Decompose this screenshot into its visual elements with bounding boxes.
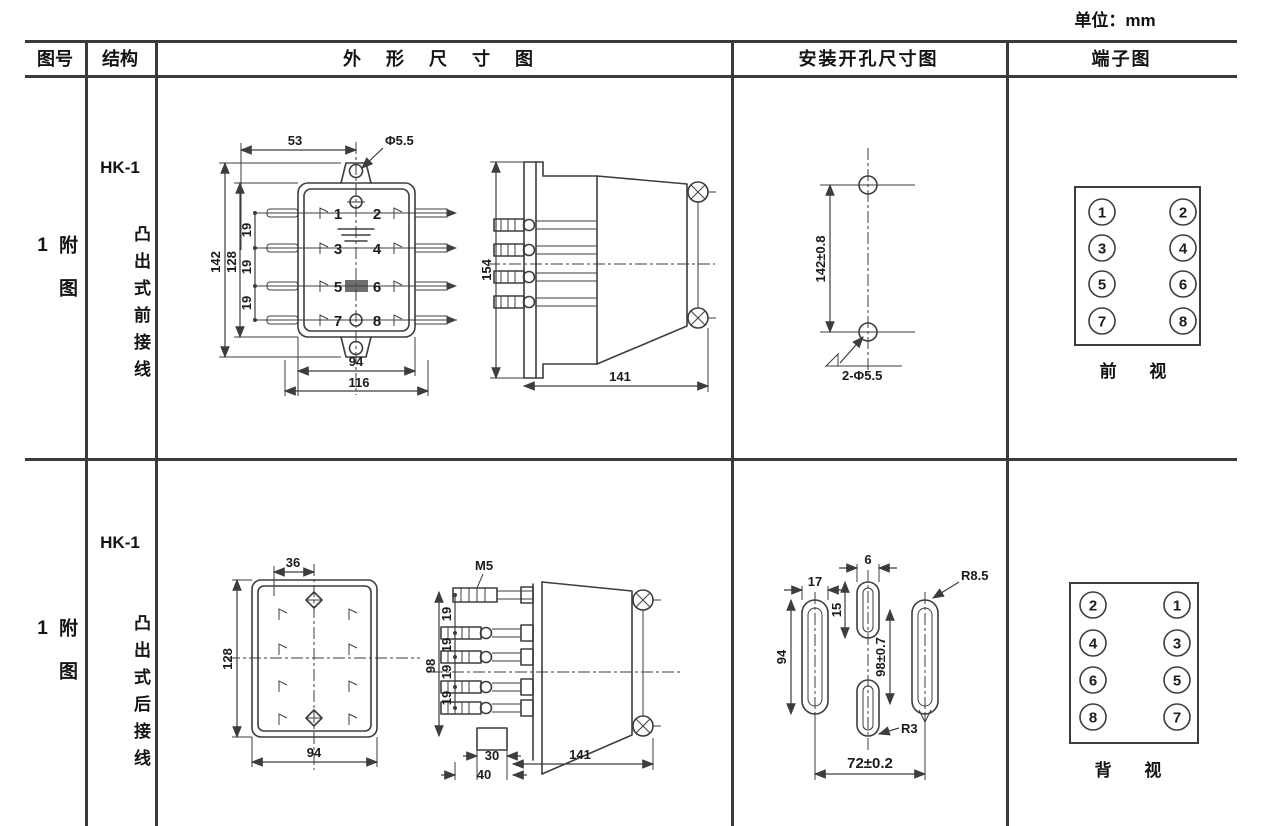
dim-label: 19	[239, 260, 254, 274]
dim-label: 19	[439, 607, 454, 621]
terminal-number: 3	[334, 241, 342, 258]
dim-label: 15	[829, 603, 844, 617]
terminal-number: 5	[334, 279, 342, 296]
terminal-number: 6	[373, 279, 381, 296]
terminal-number: 2	[373, 206, 381, 223]
terminal-number: 8	[1179, 314, 1187, 331]
terminal-number: 7	[1173, 710, 1181, 727]
dim-label: 19	[239, 296, 254, 310]
terminal-number: 2	[1179, 205, 1187, 222]
dim-label: 19	[439, 691, 454, 705]
terminal-number: 3	[1173, 636, 1181, 653]
header-figure-no: 图号	[25, 42, 85, 74]
terminal-number: 1	[1173, 598, 1181, 615]
dim-label: 72±0.2	[847, 755, 893, 772]
datasheet-page: 单位：mm 图号 结构 外 形 尺 寸 图 安装开孔尺寸图 端子图 附图1 HK…	[0, 0, 1269, 826]
dim-label: Φ5.5	[385, 133, 414, 148]
dim-label: 98±0.7	[873, 637, 888, 677]
row1-outline-side-drawing: 154 141	[480, 140, 720, 415]
dim-label: 94	[775, 649, 789, 664]
terminal-number: 7	[334, 313, 342, 330]
terminal-number: 1	[1098, 205, 1106, 222]
dim-label: 94	[349, 354, 364, 369]
dim-label: 141	[569, 747, 591, 762]
header-terminal: 端子图	[1006, 42, 1237, 74]
unit-label: 单位：mm	[1035, 6, 1195, 31]
dim-label: 6	[864, 552, 871, 567]
table-line-col2	[155, 40, 158, 826]
terminal-number: 5	[1173, 673, 1181, 690]
dim-label: R8.5	[961, 568, 988, 583]
dim-label: 30	[485, 748, 499, 763]
terminal-number: 7	[1098, 314, 1106, 331]
terminal-number: 4	[1089, 636, 1098, 653]
table-line-col3	[731, 40, 734, 826]
terminal-number: 5	[1098, 277, 1106, 294]
dim-label: 128	[222, 648, 235, 670]
dim-label: 2-Φ5.5	[842, 368, 882, 383]
row1-outline-front-drawing: 1 2 3 4 5 6 7 8 53 Φ5.5 142 128 19 19 19…	[195, 90, 480, 435]
row2-figure-no: 附图1	[30, 618, 80, 738]
row1-figure-no: 附图1	[30, 235, 80, 355]
row2-structure: 凸出式后接线	[87, 595, 153, 795]
dim-label: 116	[349, 375, 370, 390]
terminal-number: 8	[1089, 710, 1097, 727]
row1-structure: 凸出式前接线	[87, 208, 153, 403]
header-outline: 外 形 尺 寸 图	[155, 42, 731, 74]
terminal-number: 6	[1179, 277, 1187, 294]
dim-label: 40	[477, 767, 491, 782]
row2-outline-side-drawing: M5 98 19 19 19 19	[425, 548, 695, 808]
dim-label: 141	[609, 369, 631, 384]
row1-mounting-drawing: 142±0.8 2-Φ5.5	[790, 140, 985, 395]
terminal-number: 4	[1179, 241, 1188, 258]
row2-mounting-drawing: R8.5 6 17 15 94 98±0.7 R3 72±0.2	[775, 552, 1000, 797]
row2-terminal-diagram: 2 1 4 3 6 5 8 7	[1060, 575, 1210, 755]
terminal-number: 2	[1089, 598, 1097, 615]
row1-terminal-diagram: 1 2 3 4 5 6 7 8	[1065, 178, 1215, 358]
header-mounting: 安装开孔尺寸图	[731, 42, 1006, 74]
row2-model: HK-1	[87, 533, 153, 553]
dim-label: 128	[224, 251, 239, 273]
terminal-number: 6	[1089, 673, 1097, 690]
row2-view-label: 背 视	[1060, 756, 1210, 781]
terminal-number: 4	[373, 241, 382, 258]
dim-label: 142±0.8	[813, 236, 828, 283]
dim-label: R3	[901, 721, 918, 736]
dim-label: 94	[307, 745, 322, 760]
row1-model: HK-1	[87, 158, 153, 178]
dim-label: 142	[208, 251, 223, 273]
dim-label: 17	[808, 574, 822, 589]
terminal-number: 3	[1098, 241, 1106, 258]
dim-label: 154	[480, 258, 494, 280]
header-structure: 结构	[85, 42, 155, 74]
dim-label: 19	[239, 223, 254, 237]
dim-label: 19	[439, 638, 454, 652]
table-line-header-bottom	[25, 75, 1237, 78]
table-line-col4	[1006, 40, 1009, 826]
dim-label: 98	[425, 659, 438, 673]
terminal-number: 1	[334, 206, 342, 223]
dim-label: 53	[288, 133, 302, 148]
table-line-row-divider	[25, 458, 1237, 461]
row1-view-label: 前 视	[1065, 357, 1215, 382]
dim-label: M5	[475, 558, 493, 573]
row2-outline-rear-drawing: 36 128 94	[222, 552, 427, 787]
dim-label: 19	[439, 665, 454, 679]
dim-label: 36	[286, 555, 300, 570]
terminal-number: 8	[373, 313, 381, 330]
